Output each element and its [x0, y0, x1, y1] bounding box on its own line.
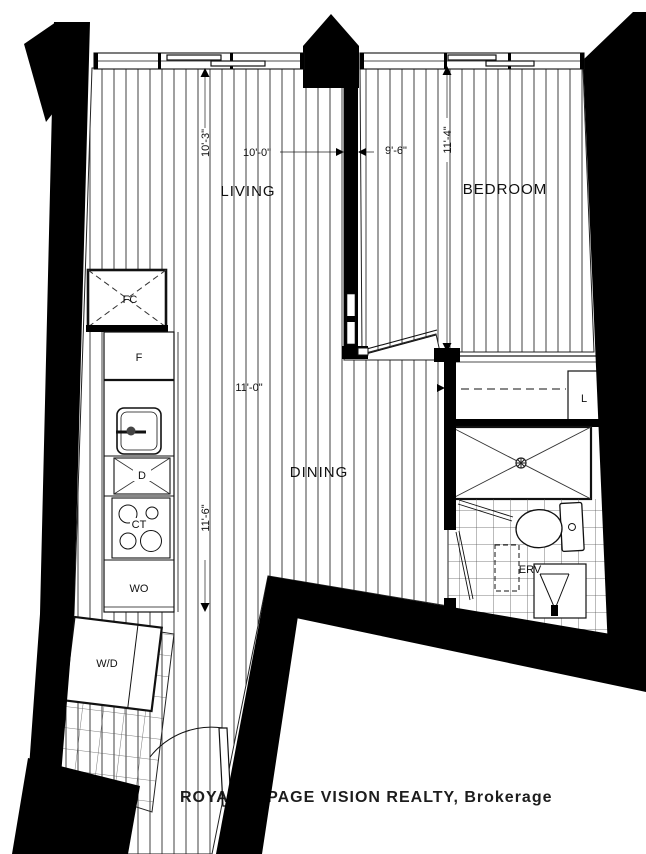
dishwasher-label: D	[138, 470, 146, 482]
shower-drain-icon	[516, 458, 526, 468]
floor-plan-page: ERV FC F	[0, 0, 646, 854]
dishwasher: D	[114, 458, 170, 494]
vanity-sink-fixture	[534, 564, 586, 618]
floor-plan-svg: ERV FC F	[0, 0, 646, 854]
dim-bedroom-width: 9'-6"	[385, 145, 407, 157]
bath-left-wall-upper	[444, 352, 456, 530]
dim-living-width: 10'-0"	[243, 147, 271, 159]
closet-bottom-wall	[446, 419, 604, 427]
fridge-label: F	[136, 352, 143, 364]
top-left-corner-wall	[24, 22, 60, 122]
kitchen-wall-stub	[86, 325, 168, 332]
cooktop: CT	[112, 498, 170, 558]
wall-oven-label: WO	[130, 583, 149, 595]
room-label-dining: DINING	[290, 464, 349, 481]
dim-bedroom-height: 11'-4"	[442, 126, 454, 153]
dim-dining-height: 11'-6"	[200, 504, 212, 531]
room-label-living: LIVING	[220, 183, 275, 200]
washer-dryer-label: W/D	[96, 658, 117, 670]
linen-closet-label: L	[581, 393, 587, 405]
bedroom-floor	[360, 68, 594, 354]
bedroom-window	[360, 53, 584, 69]
kitchen-sink	[116, 408, 161, 454]
shower-stall	[451, 427, 591, 499]
room-label-bedroom: BEDROOM	[463, 181, 548, 198]
fan-coil-unit: FC	[88, 270, 166, 327]
cooktop-label: CT	[132, 519, 147, 531]
dim-living-height: 10'-3"	[200, 129, 212, 157]
dim-dining-width: 11'-0"	[235, 382, 262, 394]
pocket-door-tick	[347, 316, 355, 322]
erv-label: ERV	[519, 564, 542, 576]
fan-coil-label: FC	[123, 294, 138, 306]
living-window	[94, 53, 304, 69]
